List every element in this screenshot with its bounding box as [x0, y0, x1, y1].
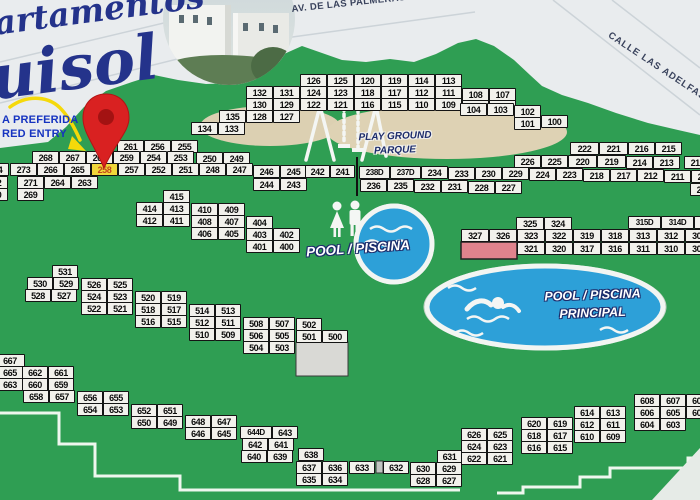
entry-note-line2: RED ENTRY — [2, 128, 67, 140]
resort-map: 1261251201191141131321311241231181171121… — [0, 0, 700, 500]
entry-note-line1: A PREFERIDA — [2, 114, 78, 126]
location-pin-icon — [83, 94, 129, 168]
pin-layer — [0, 0, 700, 500]
